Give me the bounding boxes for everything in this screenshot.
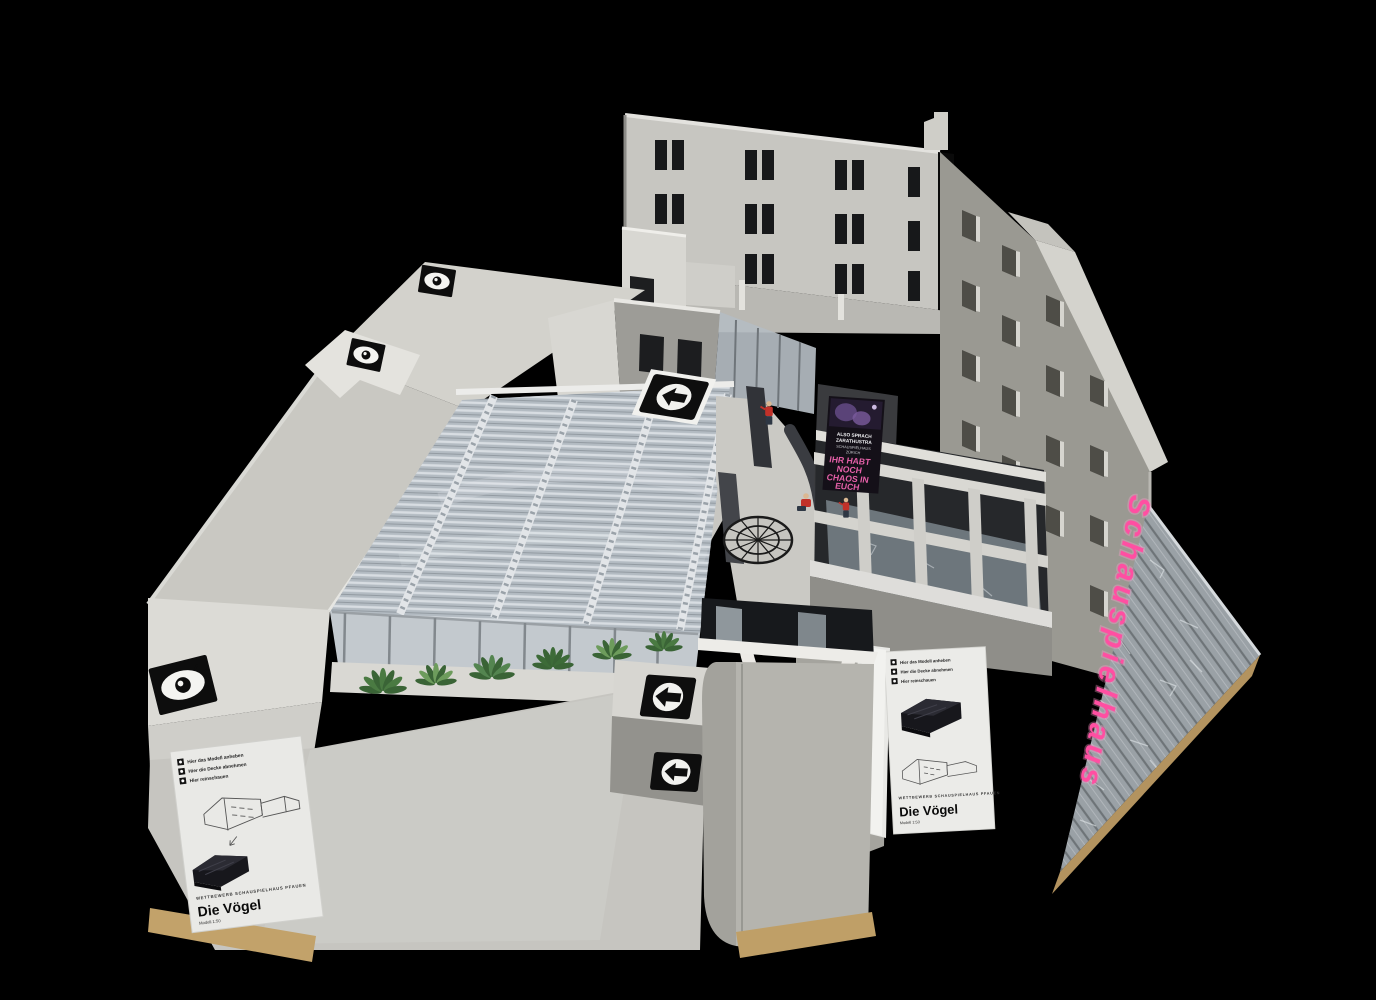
eye-icon: [418, 265, 456, 298]
window-reveal: [1104, 521, 1108, 547]
window-reveal: [976, 356, 980, 382]
window: [835, 214, 847, 244]
window: [672, 140, 684, 170]
window-reveal: [976, 426, 980, 452]
window: [835, 160, 847, 190]
headline-line: EUCH: [834, 481, 860, 493]
info-sheet-left: Hier das Modell anheben Hier die Decke a…: [170, 736, 323, 933]
north-wing-building: [622, 115, 940, 334]
window: [908, 167, 920, 197]
tower-left-face: [702, 662, 736, 946]
window-reveal: [976, 216, 980, 242]
window: [655, 140, 667, 170]
window-reveal: [1016, 321, 1020, 347]
wall-opening: [639, 334, 664, 374]
courtyard-wall-2: [686, 262, 735, 308]
photo-architectural-model: ALSO SPRACH ZARATHUSTRA SCHAUSPIELHAUS Z…: [0, 0, 1376, 1000]
window: [745, 204, 757, 234]
window-reveal: [1060, 371, 1064, 397]
window-reveal: [1016, 251, 1020, 277]
window: [745, 150, 757, 180]
window: [655, 194, 667, 224]
window: [745, 254, 757, 284]
figure-legs: [843, 510, 849, 517]
figure-legs: [797, 506, 806, 511]
window-reveal: [1104, 451, 1108, 477]
window-reveal: [1060, 301, 1064, 327]
courtyard-column: [739, 280, 745, 310]
window-reveal: [976, 286, 980, 312]
window-reveal: [1060, 441, 1064, 467]
window: [852, 214, 864, 244]
rounded-tower: [698, 598, 878, 958]
window-reveal: [1060, 511, 1064, 537]
window: [852, 160, 864, 190]
window-reveal: [1016, 391, 1020, 417]
eye-lash: [450, 283, 454, 284]
eye-lash: [379, 358, 383, 359]
figure-head: [803, 493, 809, 499]
figure-legs: [766, 416, 773, 425]
window: [762, 254, 774, 284]
figure-head: [844, 498, 848, 502]
figure-torso: [765, 407, 773, 417]
window: [672, 194, 684, 224]
sheet-title: Die Vögel: [899, 801, 958, 819]
theatre-poster: ALSO SPRACH ZARATHUSTRA SCHAUSPIELHAUS Z…: [822, 396, 884, 494]
window: [908, 271, 920, 301]
courtyard-column: [838, 294, 844, 320]
figure-torso: [843, 502, 849, 510]
mullion: [344, 613, 345, 666]
tower-front-face: [736, 662, 874, 948]
arrow-left-icon: [650, 752, 703, 792]
mullion: [389, 616, 390, 670]
model-photo: ALSO SPRACH ZARATHUSTRA SCHAUSPIELHAUS Z…: [0, 0, 1376, 1000]
sheet-scale: Modell 1:50: [900, 819, 920, 825]
info-sheet-right: Hier das Modell anheben Hier die Decke a…: [884, 646, 1002, 834]
window: [762, 204, 774, 234]
window: [762, 150, 774, 180]
wall-opening: [677, 339, 702, 378]
figure-head: [766, 401, 771, 406]
window: [852, 264, 864, 294]
window: [835, 264, 847, 294]
spiral-staircase: [724, 517, 792, 563]
arrow-left-icon: [639, 674, 696, 719]
window: [908, 221, 920, 251]
figure-torso: [801, 499, 811, 507]
window-reveal: [1104, 381, 1108, 407]
